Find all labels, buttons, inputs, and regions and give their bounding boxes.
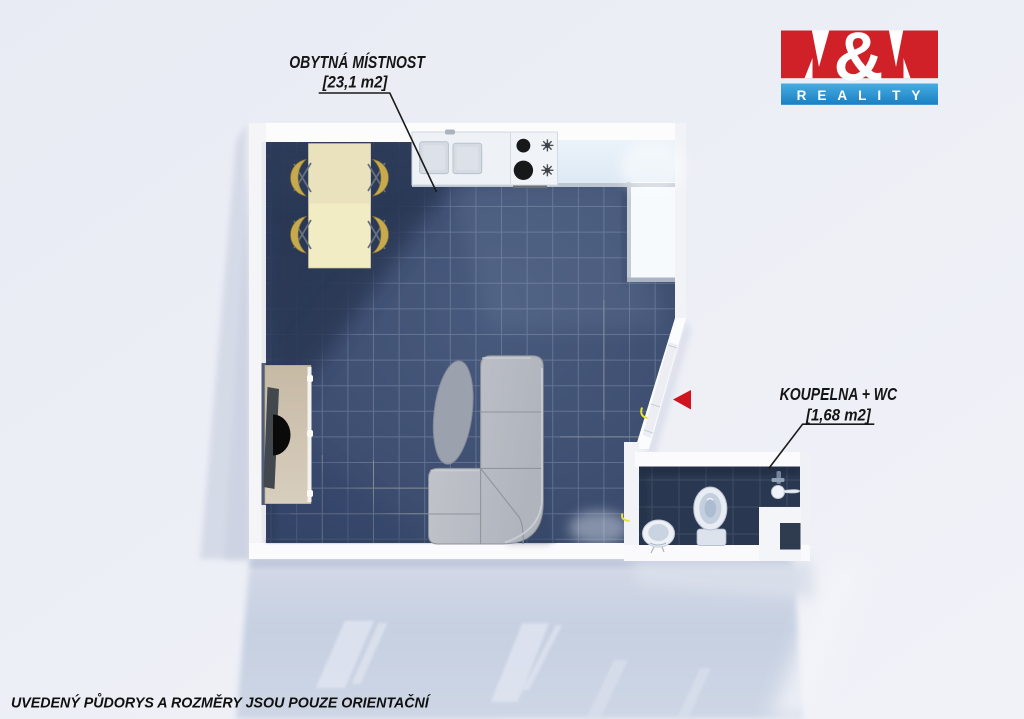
svg-text:[1,68 m2]: [1,68 m2]: [805, 407, 871, 425]
svg-text:REALITY: REALITY: [797, 88, 932, 103]
svg-text:UVEDENÝ PŮDORYS A ROZMĚRY JSOU: UVEDENÝ PŮDORYS A ROZMĚRY JSOU POUZE ORI…: [11, 692, 432, 711]
svg-text:&: &: [834, 18, 884, 95]
svg-text:OBYTNÁ MÍSTNOST: OBYTNÁ MÍSTNOST: [289, 51, 426, 72]
svg-text:[23,1 m2]: [23,1 m2]: [322, 74, 388, 92]
svg-text:KOUPELNA + WC: KOUPELNA + WC: [780, 384, 898, 404]
